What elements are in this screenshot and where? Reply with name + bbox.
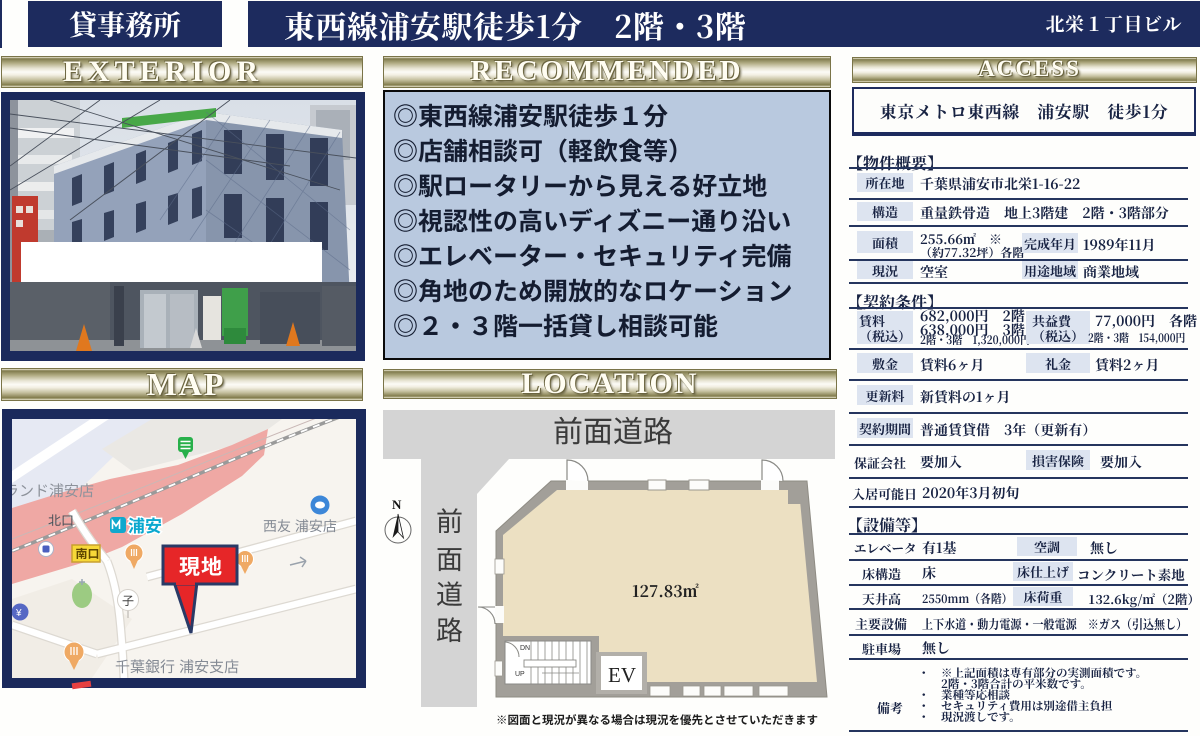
svg-text:N: N <box>392 497 402 512</box>
svg-text:現地: 現地 <box>179 551 223 581</box>
svg-text:DN: DN <box>520 645 530 652</box>
svg-text:西友 浦安店: 西友 浦安店 <box>263 516 337 536</box>
svg-text:ランド浦安店: ランド浦安店 <box>12 480 94 501</box>
svg-text:前面道路: 前面道路 <box>553 410 673 451</box>
svg-text:道: 道 <box>436 573 463 612</box>
svg-text:前: 前 <box>436 500 463 539</box>
svg-text:面: 面 <box>436 538 463 577</box>
svg-text:UP: UP <box>515 671 525 678</box>
svg-text:北口: 北口 <box>48 510 74 529</box>
svg-text:南口: 南口 <box>76 545 100 562</box>
svg-text:浦安: 浦安 <box>128 512 162 537</box>
svg-text:※図面と現況が異なる場合は現況を優先とさせていただきます: ※図面と現況が異なる場合は現況を優先とさせていただきます <box>496 712 818 728</box>
svg-text:子: 子 <box>122 592 134 609</box>
svg-text:千葉銀行 浦安支店: 千葉銀行 浦安支店 <box>115 656 239 677</box>
svg-text:127.83㎡: 127.83㎡ <box>632 579 699 602</box>
svg-text:EV: EV <box>608 663 636 687</box>
svg-text:路: 路 <box>436 609 463 648</box>
svg-text:¥: ¥ <box>15 604 22 619</box>
